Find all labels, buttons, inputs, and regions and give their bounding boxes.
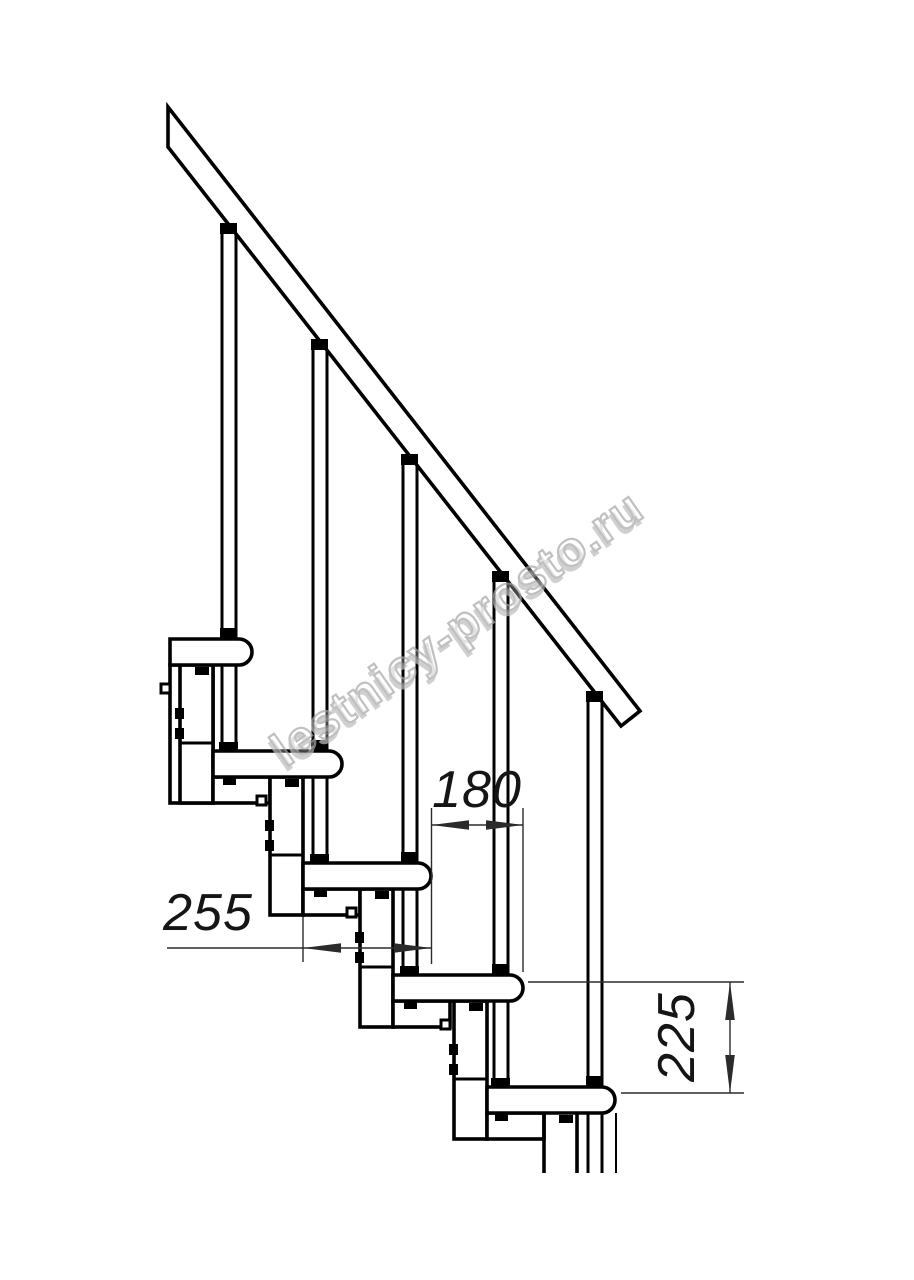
baluster-cap-icon xyxy=(586,691,603,702)
bolt-icon xyxy=(223,778,236,785)
tread-4 xyxy=(393,975,523,1001)
staircase-diagram-canvas: 180 255 225 xyxy=(0,0,914,1280)
arrowhead-left-icon xyxy=(432,820,470,830)
bolt-icon xyxy=(469,1003,483,1011)
baluster-3 xyxy=(403,458,417,977)
baluster-foot-icon xyxy=(400,966,419,975)
bolt-icon xyxy=(495,1114,508,1121)
module-column xyxy=(360,889,393,1027)
side-bolt-icon xyxy=(265,820,274,831)
bolt-icon xyxy=(314,890,327,897)
module-column xyxy=(270,777,303,915)
baluster-cap-icon xyxy=(401,454,418,465)
bolt-icon xyxy=(404,1002,417,1009)
side-bolt-icon xyxy=(355,932,364,943)
baluster-1 xyxy=(222,227,236,753)
baluster-foot-icon xyxy=(219,742,238,751)
baluster-collar-icon xyxy=(401,852,418,863)
baluster-cap-icon xyxy=(492,571,509,582)
baluster-collar-icon xyxy=(220,628,237,639)
side-bolt-icon xyxy=(175,708,184,719)
tab-icon xyxy=(441,1020,450,1029)
arrowhead-left-icon xyxy=(303,943,341,953)
tread-3 xyxy=(303,863,431,889)
dim-225-label: 225 xyxy=(648,992,706,1083)
baluster-collar-icon xyxy=(311,740,328,751)
baluster-cap-icon xyxy=(220,223,237,234)
dim-255-label: 255 xyxy=(162,884,253,942)
bolt-icon xyxy=(285,779,299,787)
balusters xyxy=(222,227,602,1173)
tab-icon xyxy=(257,796,266,805)
bolt-icon xyxy=(195,667,209,675)
side-bolt-icon xyxy=(449,1064,458,1075)
dim-180-label: 180 xyxy=(432,761,522,819)
side-bolt-icon xyxy=(175,728,184,739)
tab-icon xyxy=(347,908,356,917)
side-bolt-icon xyxy=(449,1044,458,1055)
baluster-collar-icon xyxy=(492,964,509,975)
tread-1 xyxy=(170,639,252,665)
baluster-collar-icon xyxy=(586,1076,603,1087)
bolt-icon xyxy=(375,891,389,899)
staircase-drawing: 180 255 225 lestnicy-prosto.ru xyxy=(0,0,914,1280)
baluster-foot-icon xyxy=(310,854,329,863)
arrowhead-up-icon xyxy=(725,982,735,1020)
module-column xyxy=(454,1001,487,1139)
baluster-4 xyxy=(494,575,508,1089)
arrowhead-down-icon xyxy=(725,1055,735,1093)
bolt-icon xyxy=(559,1115,573,1123)
tread-5 xyxy=(487,1087,615,1113)
baluster-foot-icon xyxy=(491,1078,510,1087)
tab-icon xyxy=(161,684,170,693)
dimension-225: 225 xyxy=(528,982,744,1093)
baluster-2 xyxy=(313,343,327,865)
baluster-cap-icon xyxy=(311,339,328,350)
module-column xyxy=(180,665,213,803)
side-bolt-icon xyxy=(265,840,274,851)
side-bolt-icon xyxy=(355,952,364,963)
tread-2 xyxy=(213,751,342,777)
